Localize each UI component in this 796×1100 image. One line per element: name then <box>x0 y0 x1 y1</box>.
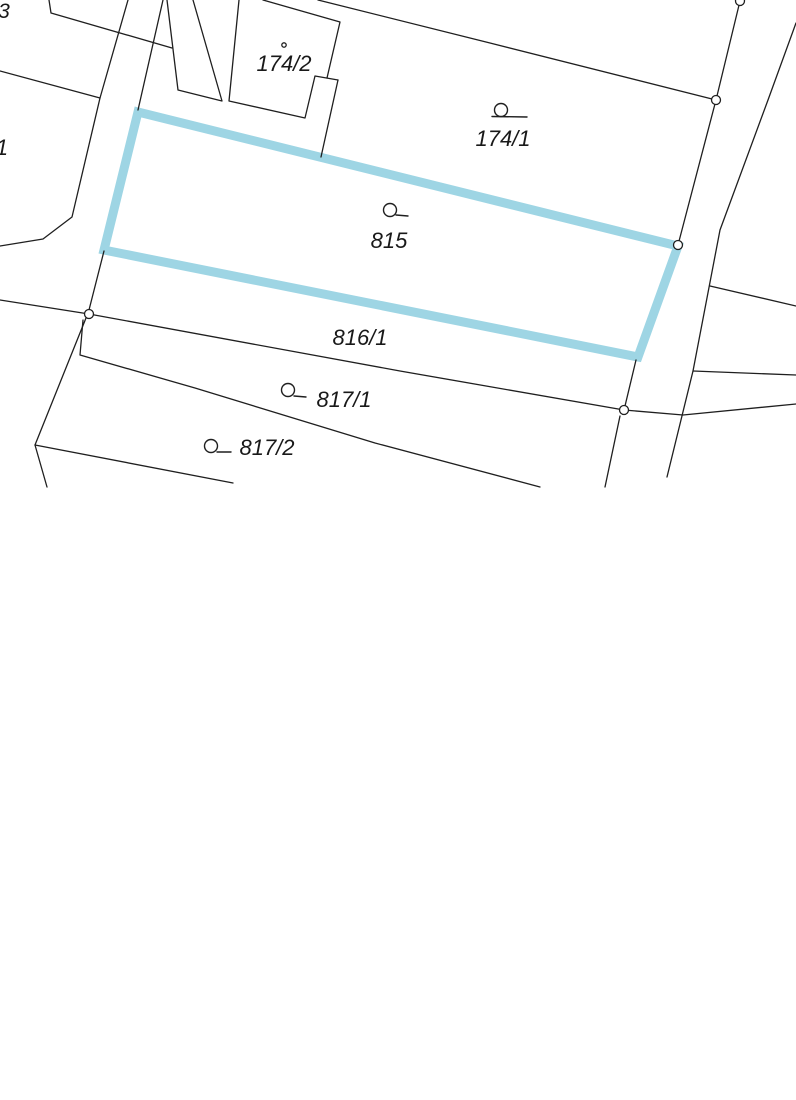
parcel-label-3: 3 <box>0 0 10 23</box>
parcel-label-174-2: 174/2 <box>256 51 311 76</box>
parcel-label-815: 815 <box>371 228 408 253</box>
vertex-marker-icon <box>674 241 683 250</box>
boundary-line-west-boundary <box>0 71 100 98</box>
boundary-line-west-edge-lower <box>35 318 86 487</box>
parcel-label-816-1: 816/1 <box>332 325 387 350</box>
boundary-line-building-notch-boundary <box>321 80 338 157</box>
landuse-symbol-icon-815 <box>384 204 409 217</box>
boundary-line-east-edge-cyan-to-node <box>625 360 636 406</box>
boundary-line-parcel-817-1-south <box>80 320 540 487</box>
landuse-symbol-icon-817-2 <box>205 440 232 453</box>
building-point-marker <box>282 43 286 47</box>
boundary-line-road-west <box>678 1 740 245</box>
vertex-markers-layer <box>85 0 745 415</box>
cadastral-map-page: 31174/2174/1815816/1817/1817/2 <box>0 0 796 1100</box>
vertex-marker-icon <box>736 0 745 6</box>
boundary-line-road-east-upper <box>138 0 163 110</box>
landuse-symbol-icon-817-1 <box>282 384 307 398</box>
boundary-line-parcel-174-1-north <box>318 0 716 100</box>
boundary-line-parcel-817-2-south <box>35 445 233 483</box>
vertex-marker-icon <box>712 96 721 105</box>
vertex-marker-icon <box>85 310 94 319</box>
boundary-line-east-branch-upper <box>710 286 796 306</box>
boundary-line-parcel-816-1-south <box>0 300 796 415</box>
boundary-line-road-west-upper <box>0 0 128 246</box>
boundary-line-east-branch-lower <box>693 371 796 375</box>
boundary-line-east-vertical-south <box>605 416 620 487</box>
parcel-labels-layer: 31174/2174/1815816/1817/1817/2 <box>0 0 531 460</box>
parcel-label-174-1: 174/1 <box>475 126 530 151</box>
boundary-line-road-east <box>667 23 796 477</box>
landuse-symbol-icon-174-1 <box>492 104 527 118</box>
parcel-label-1: 1 <box>0 135 8 160</box>
boundary-line-strip-parcel-west <box>167 0 222 101</box>
parcel-label-817-1: 817/1 <box>316 387 371 412</box>
vertex-marker-icon <box>620 406 629 415</box>
cadastral-map-canvas[interactable]: 31174/2174/1815816/1817/1817/2 <box>0 0 796 1100</box>
parcel-label-817-2: 817/2 <box>239 435 294 460</box>
boundary-line-west-edge-upper <box>89 251 104 310</box>
